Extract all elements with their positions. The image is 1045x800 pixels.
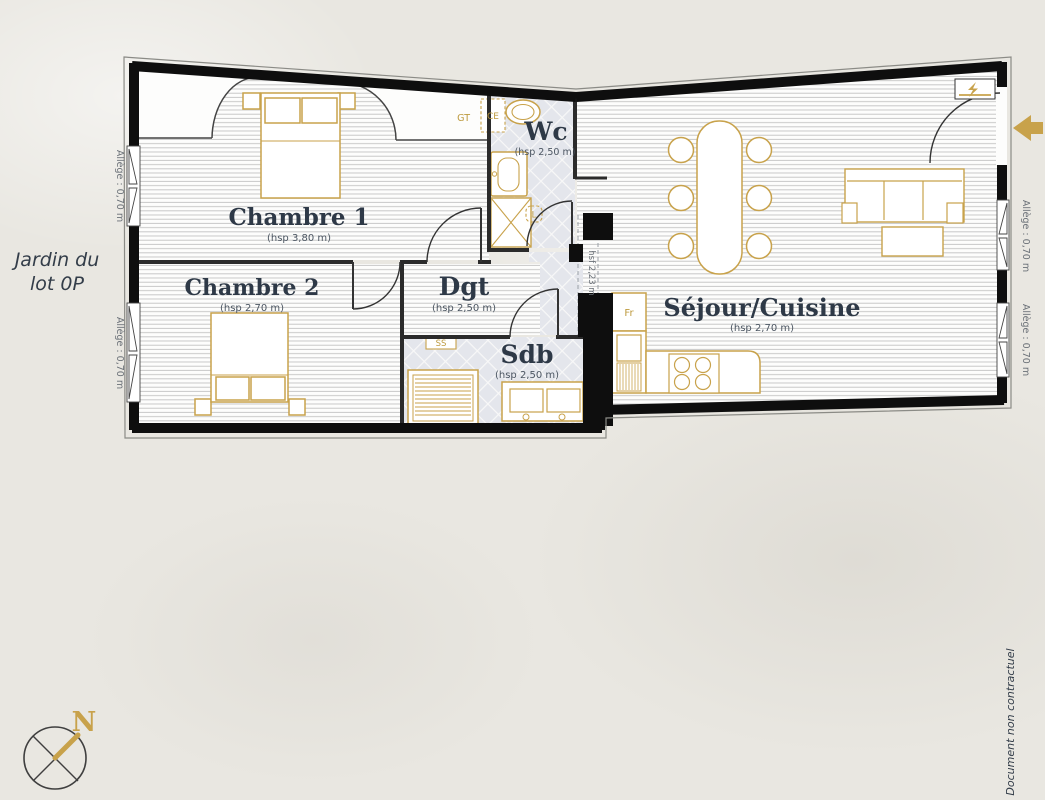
burner [696, 358, 711, 373]
compass-rose: N [24, 707, 96, 789]
label-sdb-height: (hsp 2,50 m) [495, 370, 559, 381]
sill-label-left-1: Allège : 0,70 m [114, 150, 125, 222]
label-seche-serviettes: SS [436, 339, 447, 349]
floor-plan-drawing: Chambre 1 (hsp 3,80 m) Chambre 2 (hsp 2,… [0, 0, 1045, 800]
window-left-1 [127, 146, 140, 226]
label-sejour-height: (hsp 2,70 m) [730, 323, 794, 334]
chair [669, 138, 694, 163]
sill-label-left-2: Allège : 0,70 m [114, 317, 125, 389]
floor-plan-page: Chambre 1 (hsp 3,80 m) Chambre 2 (hsp 2,… [0, 0, 1045, 800]
entrance-arrow-icon [1013, 115, 1043, 141]
bed-chambre2 [195, 313, 305, 415]
label-gt: GT [457, 113, 470, 124]
label-chambre1: Chambre 1 [228, 204, 369, 231]
chair [747, 186, 772, 211]
chair [669, 186, 694, 211]
garden-label-line2: lot 0P [30, 273, 84, 295]
label-dgt: Dgt [439, 272, 490, 301]
label-fridge: Fr [624, 308, 634, 319]
pillow [265, 98, 300, 123]
label-sdb: Sdb [500, 340, 553, 369]
label-ce: CE [487, 112, 499, 122]
garden-label-line1: Jardin du [11, 249, 100, 271]
coffee-table [882, 227, 943, 256]
kitchen-sink [617, 335, 641, 361]
nightstand [195, 399, 211, 415]
dining-table [669, 121, 772, 274]
label-sejour: Séjour/Cuisine [663, 293, 860, 322]
compass-needle [55, 735, 78, 758]
pillow [302, 98, 337, 123]
label-wc: Wc [523, 117, 567, 146]
window-left-2 [127, 303, 140, 402]
pillow [251, 377, 285, 400]
electrical-panel [955, 79, 995, 99]
label-lave-linge: L [532, 211, 537, 221]
chair [747, 138, 772, 163]
sill-label-right-1: Allège : 0,70 m [1020, 200, 1031, 272]
shower [408, 370, 478, 426]
beam-height-label: hsf 2,23 m [586, 250, 596, 295]
disclaimer-label: Document non contractuel [1004, 648, 1017, 795]
window-right-2 [997, 303, 1009, 377]
chair [669, 234, 694, 259]
nightstand [289, 399, 305, 415]
label-wc-height: (hsp 2,50 m) [515, 147, 576, 158]
chair [747, 234, 772, 259]
nightstand [243, 93, 260, 109]
label-chambre1-height: (hsp 3,80 m) [267, 233, 331, 244]
window-right-1 [997, 200, 1009, 270]
compass-north-label: N [72, 707, 97, 738]
burner [696, 375, 711, 390]
sofa [842, 169, 964, 223]
toilet [491, 152, 527, 196]
pillow [216, 377, 249, 400]
vanity-double-sink [502, 382, 583, 421]
burner [675, 358, 690, 373]
label-chambre2: Chambre 2 [185, 275, 320, 301]
burner [675, 375, 690, 390]
label-chambre2-height: (hsp 2,70 m) [220, 303, 284, 314]
water-heater-closet [491, 198, 531, 247]
label-dgt-height: (hsp 2,50 m) [432, 303, 496, 314]
sill-label-right-2: Allège : 0,70 m [1020, 304, 1031, 376]
